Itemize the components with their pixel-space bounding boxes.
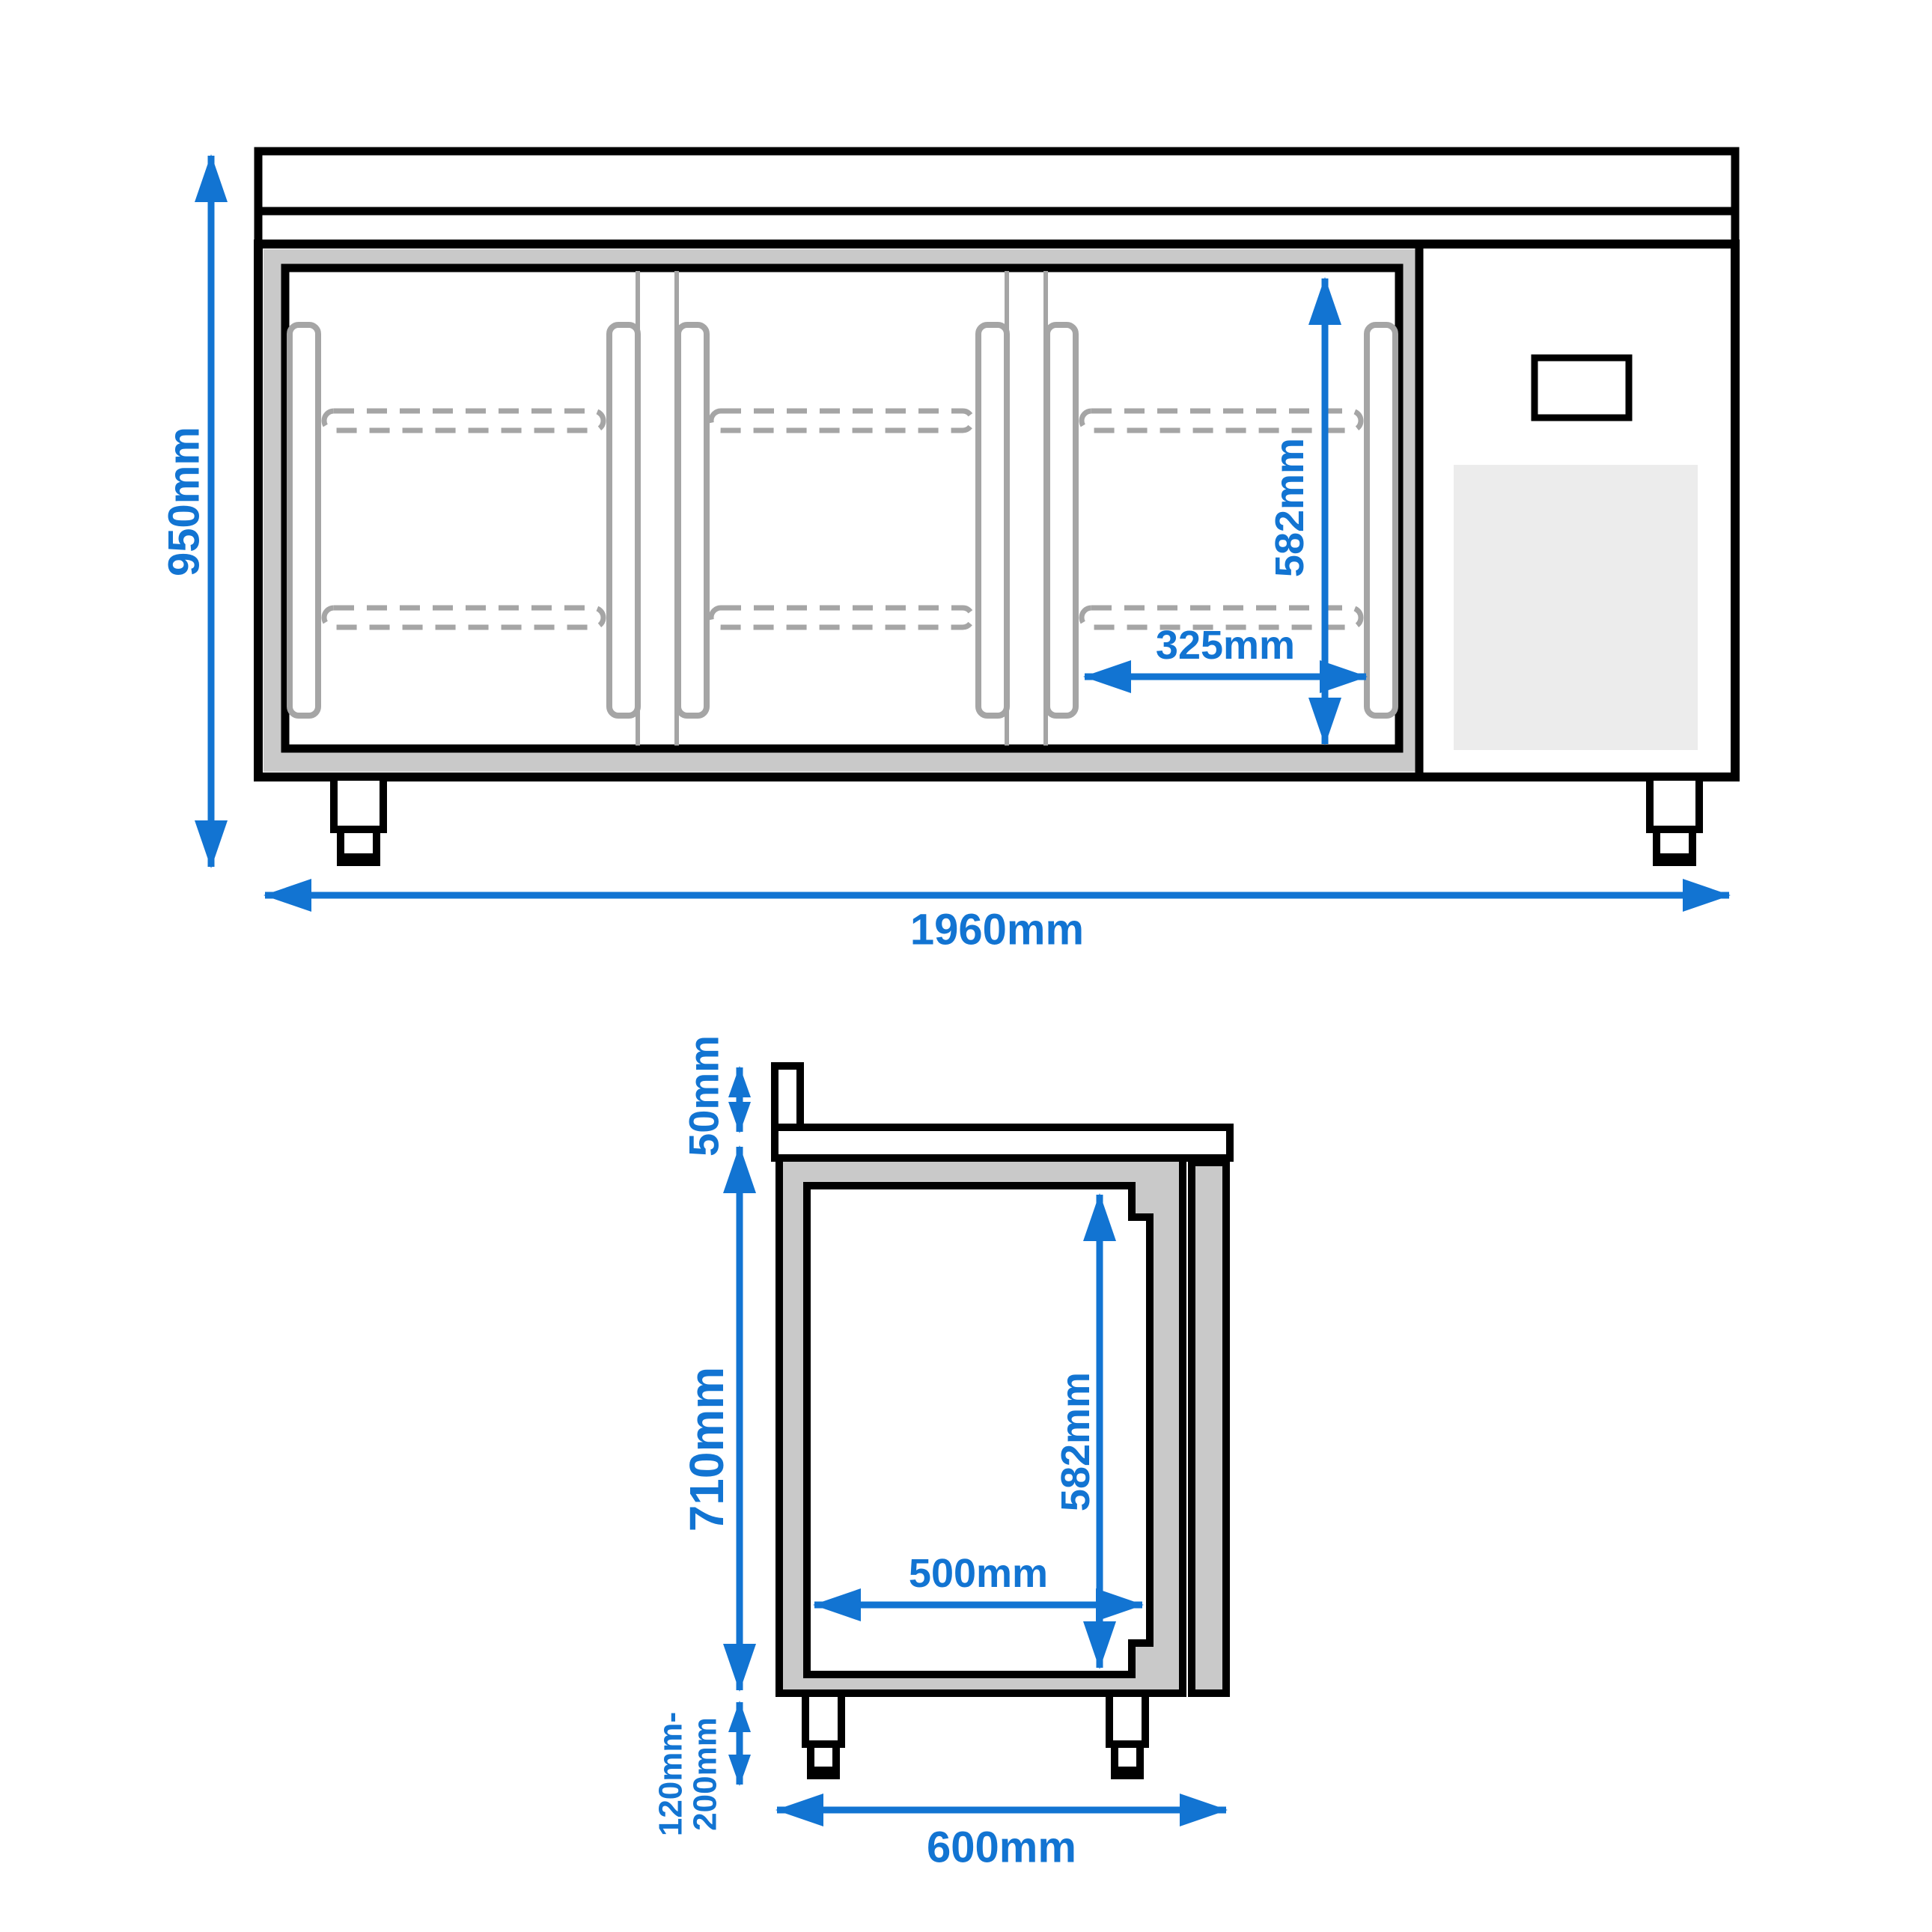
- dim-overall-height: 950mm: [160, 156, 212, 867]
- door1-left-stile: [290, 325, 318, 716]
- side-backsplash: [775, 1066, 800, 1127]
- side-rear-leg: [1109, 1693, 1145, 1776]
- side-view: 50mm 710mm 120mm- 200mm 582mm 500mm 600m…: [653, 1035, 1231, 1871]
- drawing-canvas: 950mm 1960mm 582mm 325mm: [0, 0, 1932, 1932]
- dim-leg-height: 120mm- 200mm: [653, 1702, 740, 1836]
- door3-left-stile: [1047, 325, 1076, 716]
- dim-backsplash-height: 50mm: [680, 1035, 740, 1157]
- dim-label-overall-depth: 600mm: [927, 1823, 1076, 1872]
- door2-left-stile: [678, 325, 707, 716]
- dim-overall-width: 1960mm: [265, 895, 1729, 954]
- front-left-leg: [334, 777, 383, 862]
- door3-right-stile: [1367, 325, 1395, 716]
- front-worktop-edge: [258, 211, 1735, 244]
- front-right-leg: [1650, 777, 1699, 862]
- front-view: 950mm 1960mm 582mm 325mm: [160, 151, 1736, 954]
- door1-right-stile: [609, 325, 638, 716]
- front-worktop: [258, 151, 1735, 211]
- dim-label-inner-depth: 500mm: [909, 1551, 1048, 1596]
- ventilation-grille: [1454, 465, 1698, 750]
- dim-label-leg-height-max: 200mm: [687, 1717, 724, 1831]
- dim-overall-depth: 600mm: [777, 1810, 1226, 1872]
- side-door: [1192, 1162, 1226, 1693]
- dim-label-overall-height: 950mm: [160, 427, 209, 576]
- control-panel-display: [1535, 358, 1629, 418]
- dim-label-leg-height-min: 120mm-: [653, 1712, 689, 1836]
- dim-label-backsplash-height: 50mm: [680, 1035, 728, 1157]
- dim-label-front-inner-height: 582mm: [1267, 438, 1312, 577]
- door2-right-stile: [978, 325, 1007, 716]
- dim-label-overall-width: 1960mm: [910, 906, 1084, 954]
- technical-drawing-page: 950mm 1960mm 582mm 325mm: [0, 0, 1932, 1932]
- side-front-leg: [805, 1693, 841, 1776]
- dim-label-body-height: 710mm: [680, 1367, 734, 1532]
- side-worktop: [775, 1127, 1230, 1158]
- dim-label-door-opening-width: 325mm: [1156, 623, 1295, 668]
- dim-label-side-inner-height: 582mm: [1053, 1372, 1098, 1511]
- dim-body-height: 710mm: [680, 1147, 740, 1690]
